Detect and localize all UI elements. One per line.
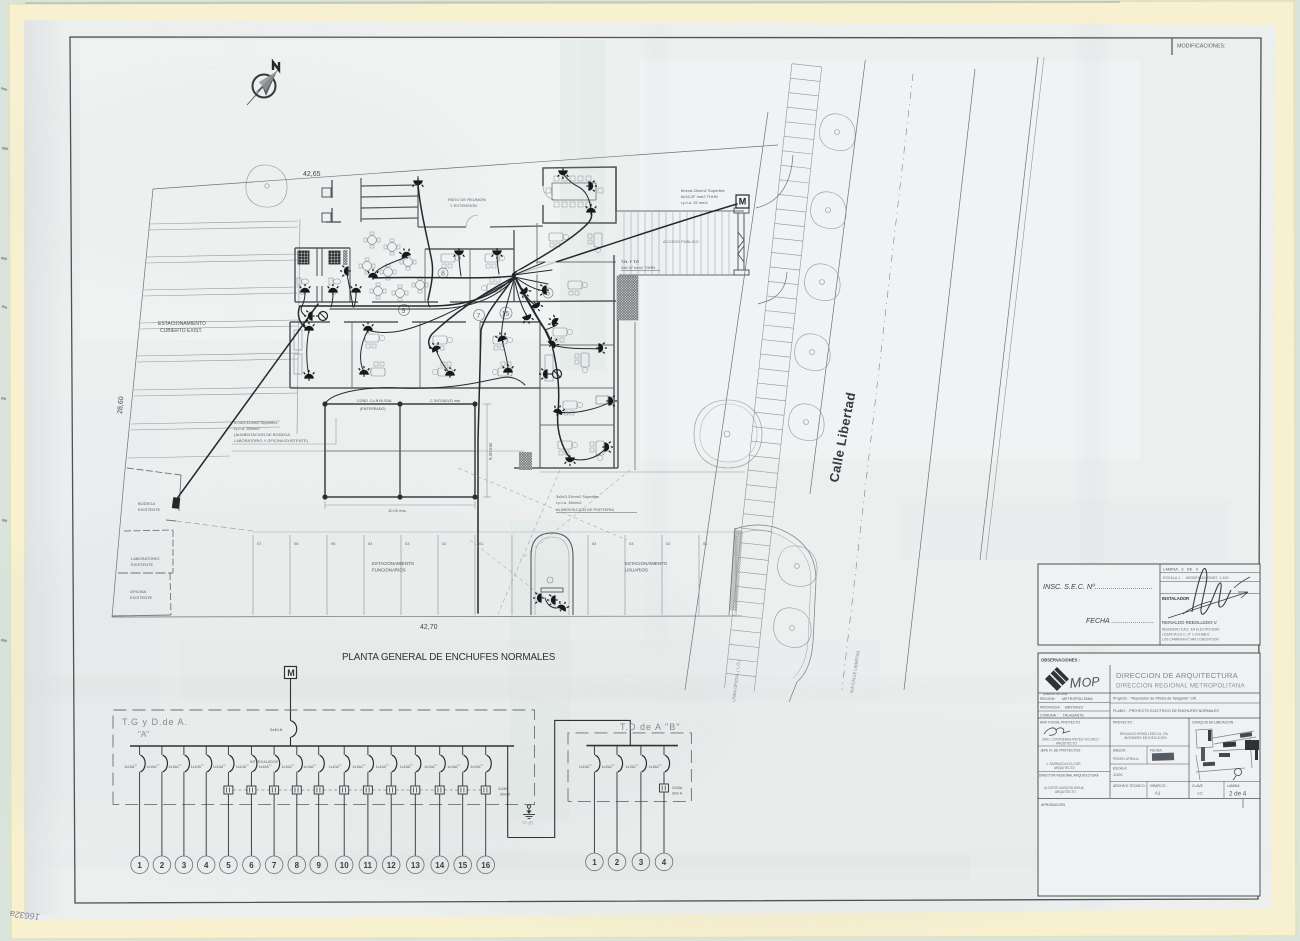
svg-text:5: 5 xyxy=(226,861,231,870)
svg-text:LAMINA 3 DE 4: LAMINA 3 DE 4 xyxy=(1163,567,1199,572)
svg-text:02: 02 xyxy=(666,541,671,546)
svg-text:05: 05 xyxy=(331,541,336,546)
svg-text:30m A: 30m A xyxy=(672,792,683,796)
svg-text:2x25A: 2x25A xyxy=(498,787,509,791)
svg-text:1x15A: 1x15A xyxy=(303,765,314,769)
svg-text:PLANTA GENERAL DE ENCHUFES NOR: PLANTA GENERAL DE ENCHUFES NORMALES xyxy=(342,652,556,663)
svg-text:6x16.2F mm2 THHN: 6x16.2F mm2 THHN xyxy=(681,194,718,199)
svg-text:INGENIERO EN EJECUCION: INGENIERO EN EJECUCION xyxy=(1124,736,1167,740)
svg-text:ALIMENTACION DE PORTERIA: ALIMENTACION DE PORTERIA xyxy=(556,507,614,512)
svg-text:COND. Cu NYA /GAL: COND. Cu NYA /GAL xyxy=(357,399,392,403)
svg-text:1x15A: 1x15A xyxy=(213,765,224,769)
svg-text:2x25A: 2x25A xyxy=(672,786,683,790)
svg-text:42,65: 42,65 xyxy=(303,171,321,178)
svg-text:03: 03 xyxy=(405,541,410,546)
svg-text:4: 4 xyxy=(204,861,209,870)
svg-text:2x40 A: 2x40 A xyxy=(270,727,283,732)
svg-text:ACCESO PUBLICO: ACCESO PUBLICO xyxy=(663,239,699,244)
svg-text:7: 7 xyxy=(477,313,481,320)
svg-text:1x10A: 1x10A xyxy=(146,765,157,769)
svg-text:OFICINA: OFICINA xyxy=(130,589,147,594)
svg-text:1x15A: 1x15A xyxy=(579,765,590,769)
svg-text:DIRECCION REGIONAL METROPOLI: DIRECCION REGIONAL METROPOLITANA xyxy=(1116,683,1245,690)
svg-text:DIBUJO :: DIBUJO : xyxy=(1113,749,1127,753)
svg-text:EXISTENTE: EXISTENTE xyxy=(130,595,153,600)
svg-text:01: 01 xyxy=(479,541,484,546)
svg-text:M: M xyxy=(287,668,295,678)
svg-text:APROBACION: APROBACION xyxy=(1041,803,1065,807)
svg-text:1: 1 xyxy=(592,858,597,867)
svg-text:ESCALA :: ESCALA : xyxy=(1113,767,1128,771)
svg-text:14: 14 xyxy=(435,861,444,870)
svg-text:ARQUITECTO: ARQUITECTO xyxy=(1054,766,1075,770)
svg-text:ARQUITECTO: ARQUITECTO xyxy=(1056,742,1077,746)
svg-text:16: 16 xyxy=(481,861,490,870)
svg-text:LAMINA: LAMINA xyxy=(1227,784,1240,788)
svg-text:CLAVE: CLAVE xyxy=(1192,784,1204,788)
svg-text:INGENIERO EJEC. EN ELECTRICIDA: INGENIERO EJEC. EN ELECTRICIDAD xyxy=(1162,628,1220,632)
svg-text:PEDRO ATRIA A.: PEDRO ATRIA A. xyxy=(1113,757,1139,761)
svg-text:INSTALADOR: INSTALADOR xyxy=(1162,596,1189,601)
svg-text:OBSERVACIONES :: OBSERVACIONES : xyxy=(1041,658,1080,663)
svg-text:LABORATORIO: LABORATORIO xyxy=(131,556,160,561)
svg-text:FECHA ......................: FECHA ...................... xyxy=(1086,618,1154,625)
svg-text:07: 07 xyxy=(257,541,262,546)
svg-text:Y EXTENSION: Y EXTENSION xyxy=(450,203,477,208)
svg-text:T.D de A "B": T.D de A "B" xyxy=(620,722,680,732)
svg-text:T.G y D.de A.: T.G y D.de A. xyxy=(122,717,188,727)
svg-text:13: 13 xyxy=(411,861,420,870)
svg-text:9.30 mts: 9.30 mts xyxy=(488,442,493,460)
svg-text:LABORATORIO Y OFICINA EXISTENT: LABORATORIO Y OFICINA EXISTENTE) xyxy=(234,438,309,443)
svg-text:BODEGA: BODEGA xyxy=(138,501,155,506)
svg-text:GRAFICO :: GRAFICO : xyxy=(1150,784,1167,788)
svg-text:1x15A: 1x15A xyxy=(259,765,270,769)
svg-text:LOS CARRERA N°1445 CONCEPCION: LOS CARRERA N°1445 CONCEPCION xyxy=(1162,638,1219,642)
svg-text:t.p.t.a. 35mm2: t.p.t.a. 35mm2 xyxy=(556,500,582,505)
svg-text:Proyecto : "Reposicion de Ofic: Proyecto : "Reposicion de Oficina de Tal… xyxy=(1113,697,1196,701)
svg-text:2: 2 xyxy=(615,858,620,867)
svg-text:MODIFICACIONES:: MODIFICACIONES: xyxy=(1177,44,1226,50)
svg-text:7: 7 xyxy=(272,861,277,870)
svg-text:JEFE N. DE PROYECTOS: JEFE N. DE PROYECTOS xyxy=(1040,749,1081,753)
svg-text:A1: A1 xyxy=(1155,791,1161,796)
svg-text:04: 04 xyxy=(368,541,373,546)
svg-text:2 de 4: 2 de 4 xyxy=(1229,791,1247,798)
svg-text:M: M xyxy=(739,197,747,207)
svg-text:DIRECCION DE ARQUITECTURA: DIRECCION DE ARQUITECTURA xyxy=(1116,671,1239,680)
svg-text:1x15A: 1x15A xyxy=(447,765,458,769)
svg-text:1x15A: 1x15A xyxy=(625,765,636,769)
svg-text:PATIO DE REUNION: PATIO DE REUNION xyxy=(448,197,486,202)
svg-text:10.00 mts.: 10.00 mts. xyxy=(388,508,407,513)
svg-text:03: 03 xyxy=(629,541,634,546)
svg-text:FECHA :: FECHA : xyxy=(1150,749,1163,753)
svg-text:T.T. (T): T.T. (T) xyxy=(522,821,533,825)
svg-text:T.G. Y T.F.: T.G. Y T.F. xyxy=(621,259,639,264)
svg-text:(ALIMENTACION DE BODEGA: (ALIMENTACION DE BODEGA xyxy=(234,432,290,437)
svg-text:02: 02 xyxy=(442,541,447,546)
svg-text:5=3x3.31mm2 Superflex: 5=3x3.31mm2 Superflex xyxy=(234,420,277,425)
svg-text:3: 3 xyxy=(182,861,187,870)
svg-text:1x15A: 1x15A xyxy=(352,765,363,769)
svg-text:Gobierno de Chile: Gobierno de Chile xyxy=(1043,692,1068,696)
svg-text:1x15A: 1x15A xyxy=(602,765,613,769)
svg-text:ARP. FISCAL PROYECTO: ARP. FISCAL PROYECTO xyxy=(1040,721,1080,725)
svg-text:OP: OP xyxy=(1081,674,1101,690)
svg-text:COMUNA : TALAGANTE: COMUNA : TALAGANTE xyxy=(1040,714,1084,718)
svg-text:CUBIERTO EXIST.: CUBIERTO EXIST. xyxy=(160,328,202,334)
svg-text:ESCALA 1 : -MODIFICACIONES: ESCALA 1 : -MODIFICACIONES 1:100 xyxy=(1163,576,1229,580)
svg-text:ESTACIONAMIENTO: ESTACIONAMIENTO xyxy=(372,561,415,566)
svg-text:"A": "A" xyxy=(138,730,149,739)
svg-text:USUARIOS: USUARIOS xyxy=(625,568,648,573)
svg-text:1x15A: 1x15A xyxy=(649,765,660,769)
svg-text:11: 11 xyxy=(364,861,373,870)
svg-text:1x10A: 1x10A xyxy=(470,765,481,769)
svg-text:42,70: 42,70 xyxy=(420,624,438,631)
svg-text:9: 9 xyxy=(317,861,322,870)
svg-text:30m A: 30m A xyxy=(500,793,511,797)
svg-text:ARCHIVO TECNICO :: ARCHIVO TECNICO : xyxy=(1113,784,1147,788)
svg-text:6mmA 25mm2 Superflex: 6mmA 25mm2 Superflex xyxy=(681,188,725,193)
svg-text:(ENTERRADO): (ENTERRADO) xyxy=(360,407,386,411)
svg-text:CROQUIS DE UBICACION :: CROQUIS DE UBICACION : xyxy=(1192,721,1235,725)
svg-text:3: 3 xyxy=(639,858,644,867)
svg-text:EXISTENTE: EXISTENTE xyxy=(138,507,161,512)
svg-text:1x10A: 1x10A xyxy=(281,765,292,769)
svg-text:LICENCIA S.E.C. N° 1.014.838-8: LICENCIA S.E.C. N° 1.014.838-8 xyxy=(1162,633,1209,637)
svg-text:8: 8 xyxy=(441,271,445,278)
svg-text:PLANO : PROYECTO ELECTRICO DE: PLANO : PROYECTO ELECTRICO DE ENCHUFES N… xyxy=(1113,709,1219,713)
svg-text:FUNCIONARIOS: FUNCIONARIOS xyxy=(372,568,406,573)
svg-text:1x10A: 1x10A xyxy=(376,765,387,769)
svg-text:DIRECTOR REGIONAL ARQUITECTURA: DIRECTOR REGIONAL ARQUITECTURA xyxy=(1039,774,1100,778)
svg-text:1x10A: 1x10A xyxy=(191,765,202,769)
svg-text:3x6 47 mm2 THHN: 3x6 47 mm2 THHN xyxy=(621,265,655,270)
svg-text:4: 4 xyxy=(662,858,667,867)
svg-text:1/100: 1/100 xyxy=(1113,773,1123,777)
svg-text:INTERCALADOS: INTERCALADOS xyxy=(250,760,279,764)
svg-text:01: 01 xyxy=(703,541,708,546)
svg-text:INSC. S.E.C. Nº...............: INSC. S.E.C. Nº.........................… xyxy=(1043,582,1153,591)
svg-text:1x10A: 1x10A xyxy=(424,765,435,769)
svg-text:EXISTENTE: EXISTENTE xyxy=(131,562,154,567)
svg-text:C 3/4"GALV'D mts: C 3/4"GALV'D mts xyxy=(430,399,460,403)
svg-text:1x10A: 1x10A xyxy=(329,765,340,769)
svg-text:15: 15 xyxy=(458,861,467,870)
svg-text:PROVINCIA : SANTIAGO: PROVINCIA : SANTIAGO xyxy=(1040,706,1083,710)
svg-text:REINALDO REBOLLEDO V.: REINALDO REBOLLEDO V. xyxy=(1162,620,1217,625)
svg-text:06: 06 xyxy=(294,541,299,546)
svg-text:ESTACIONAMIENTO: ESTACIONAMIENTO xyxy=(158,321,206,327)
svg-text:8: 8 xyxy=(295,861,300,870)
svg-text:1x15A: 1x15A xyxy=(168,765,179,769)
svg-text:1: 1 xyxy=(137,861,142,870)
svg-text:6: 6 xyxy=(249,861,254,870)
svg-text:t.p.t.a. 35mm2: t.p.t.a. 35mm2 xyxy=(234,426,260,431)
svg-text:3x5x3.31mm2 Superflex: 3x5x3.31mm2 Superflex xyxy=(556,494,599,499)
svg-text:10: 10 xyxy=(340,861,349,870)
svg-text:ARQUITECTO: ARQUITECTO xyxy=(1055,790,1076,794)
svg-text:REGION : METROPOLITANA: REGION : METROPOLITANA xyxy=(1040,697,1093,701)
svg-text:ESTACIONAMIENTO: ESTACIONAMIENTO xyxy=(625,561,668,566)
svg-text:VC: VC xyxy=(1197,791,1203,796)
svg-text:1x10A: 1x10A xyxy=(236,765,247,769)
svg-text:1x15A: 1x15A xyxy=(124,765,135,769)
svg-text:04: 04 xyxy=(592,541,597,546)
svg-text:28,60: 28,60 xyxy=(117,396,125,414)
svg-text:1x15A: 1x15A xyxy=(400,765,411,769)
svg-text:t.p.t.a. 32 mm2: t.p.t.a. 32 mm2 xyxy=(681,200,708,205)
svg-text:12: 12 xyxy=(387,861,396,870)
svg-text:PROYECTO :: PROYECTO : xyxy=(1113,721,1134,725)
svg-text:2: 2 xyxy=(160,861,165,870)
svg-text:15: 15 xyxy=(502,311,510,318)
